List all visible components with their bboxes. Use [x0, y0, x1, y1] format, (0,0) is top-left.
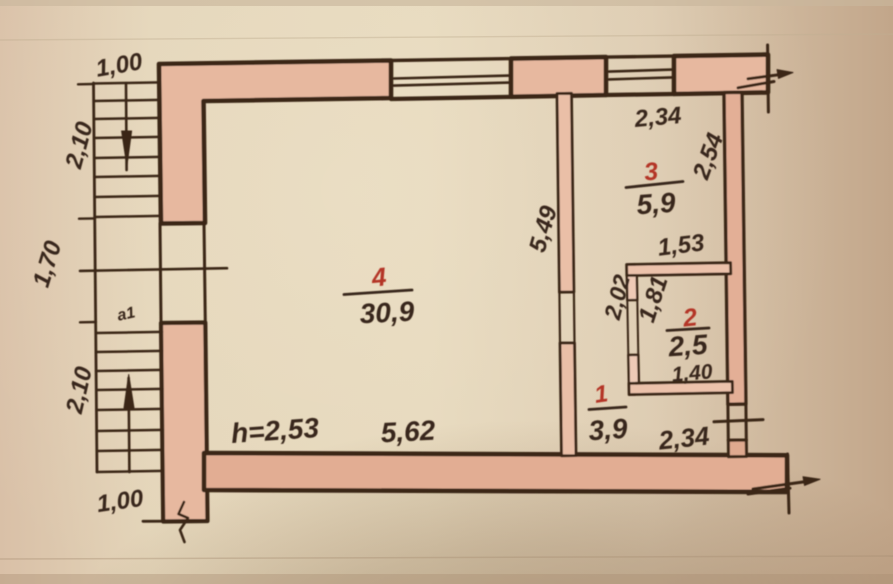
- svg-text:5,9: 5,9: [635, 187, 676, 221]
- svg-text:5,62: 5,62: [380, 415, 436, 449]
- svg-text:h=2,53: h=2,53: [230, 412, 320, 449]
- svg-text:2,34: 2,34: [633, 102, 683, 133]
- svg-text:30,9: 30,9: [359, 296, 415, 330]
- svg-text:1,53: 1,53: [656, 229, 706, 262]
- svg-text:2,34: 2,34: [656, 420, 711, 455]
- svg-text:1,40: 1,40: [671, 360, 714, 387]
- svg-text:2,5: 2,5: [666, 329, 708, 363]
- svg-text:a1: a1: [116, 304, 137, 324]
- svg-text:3,9: 3,9: [587, 413, 628, 447]
